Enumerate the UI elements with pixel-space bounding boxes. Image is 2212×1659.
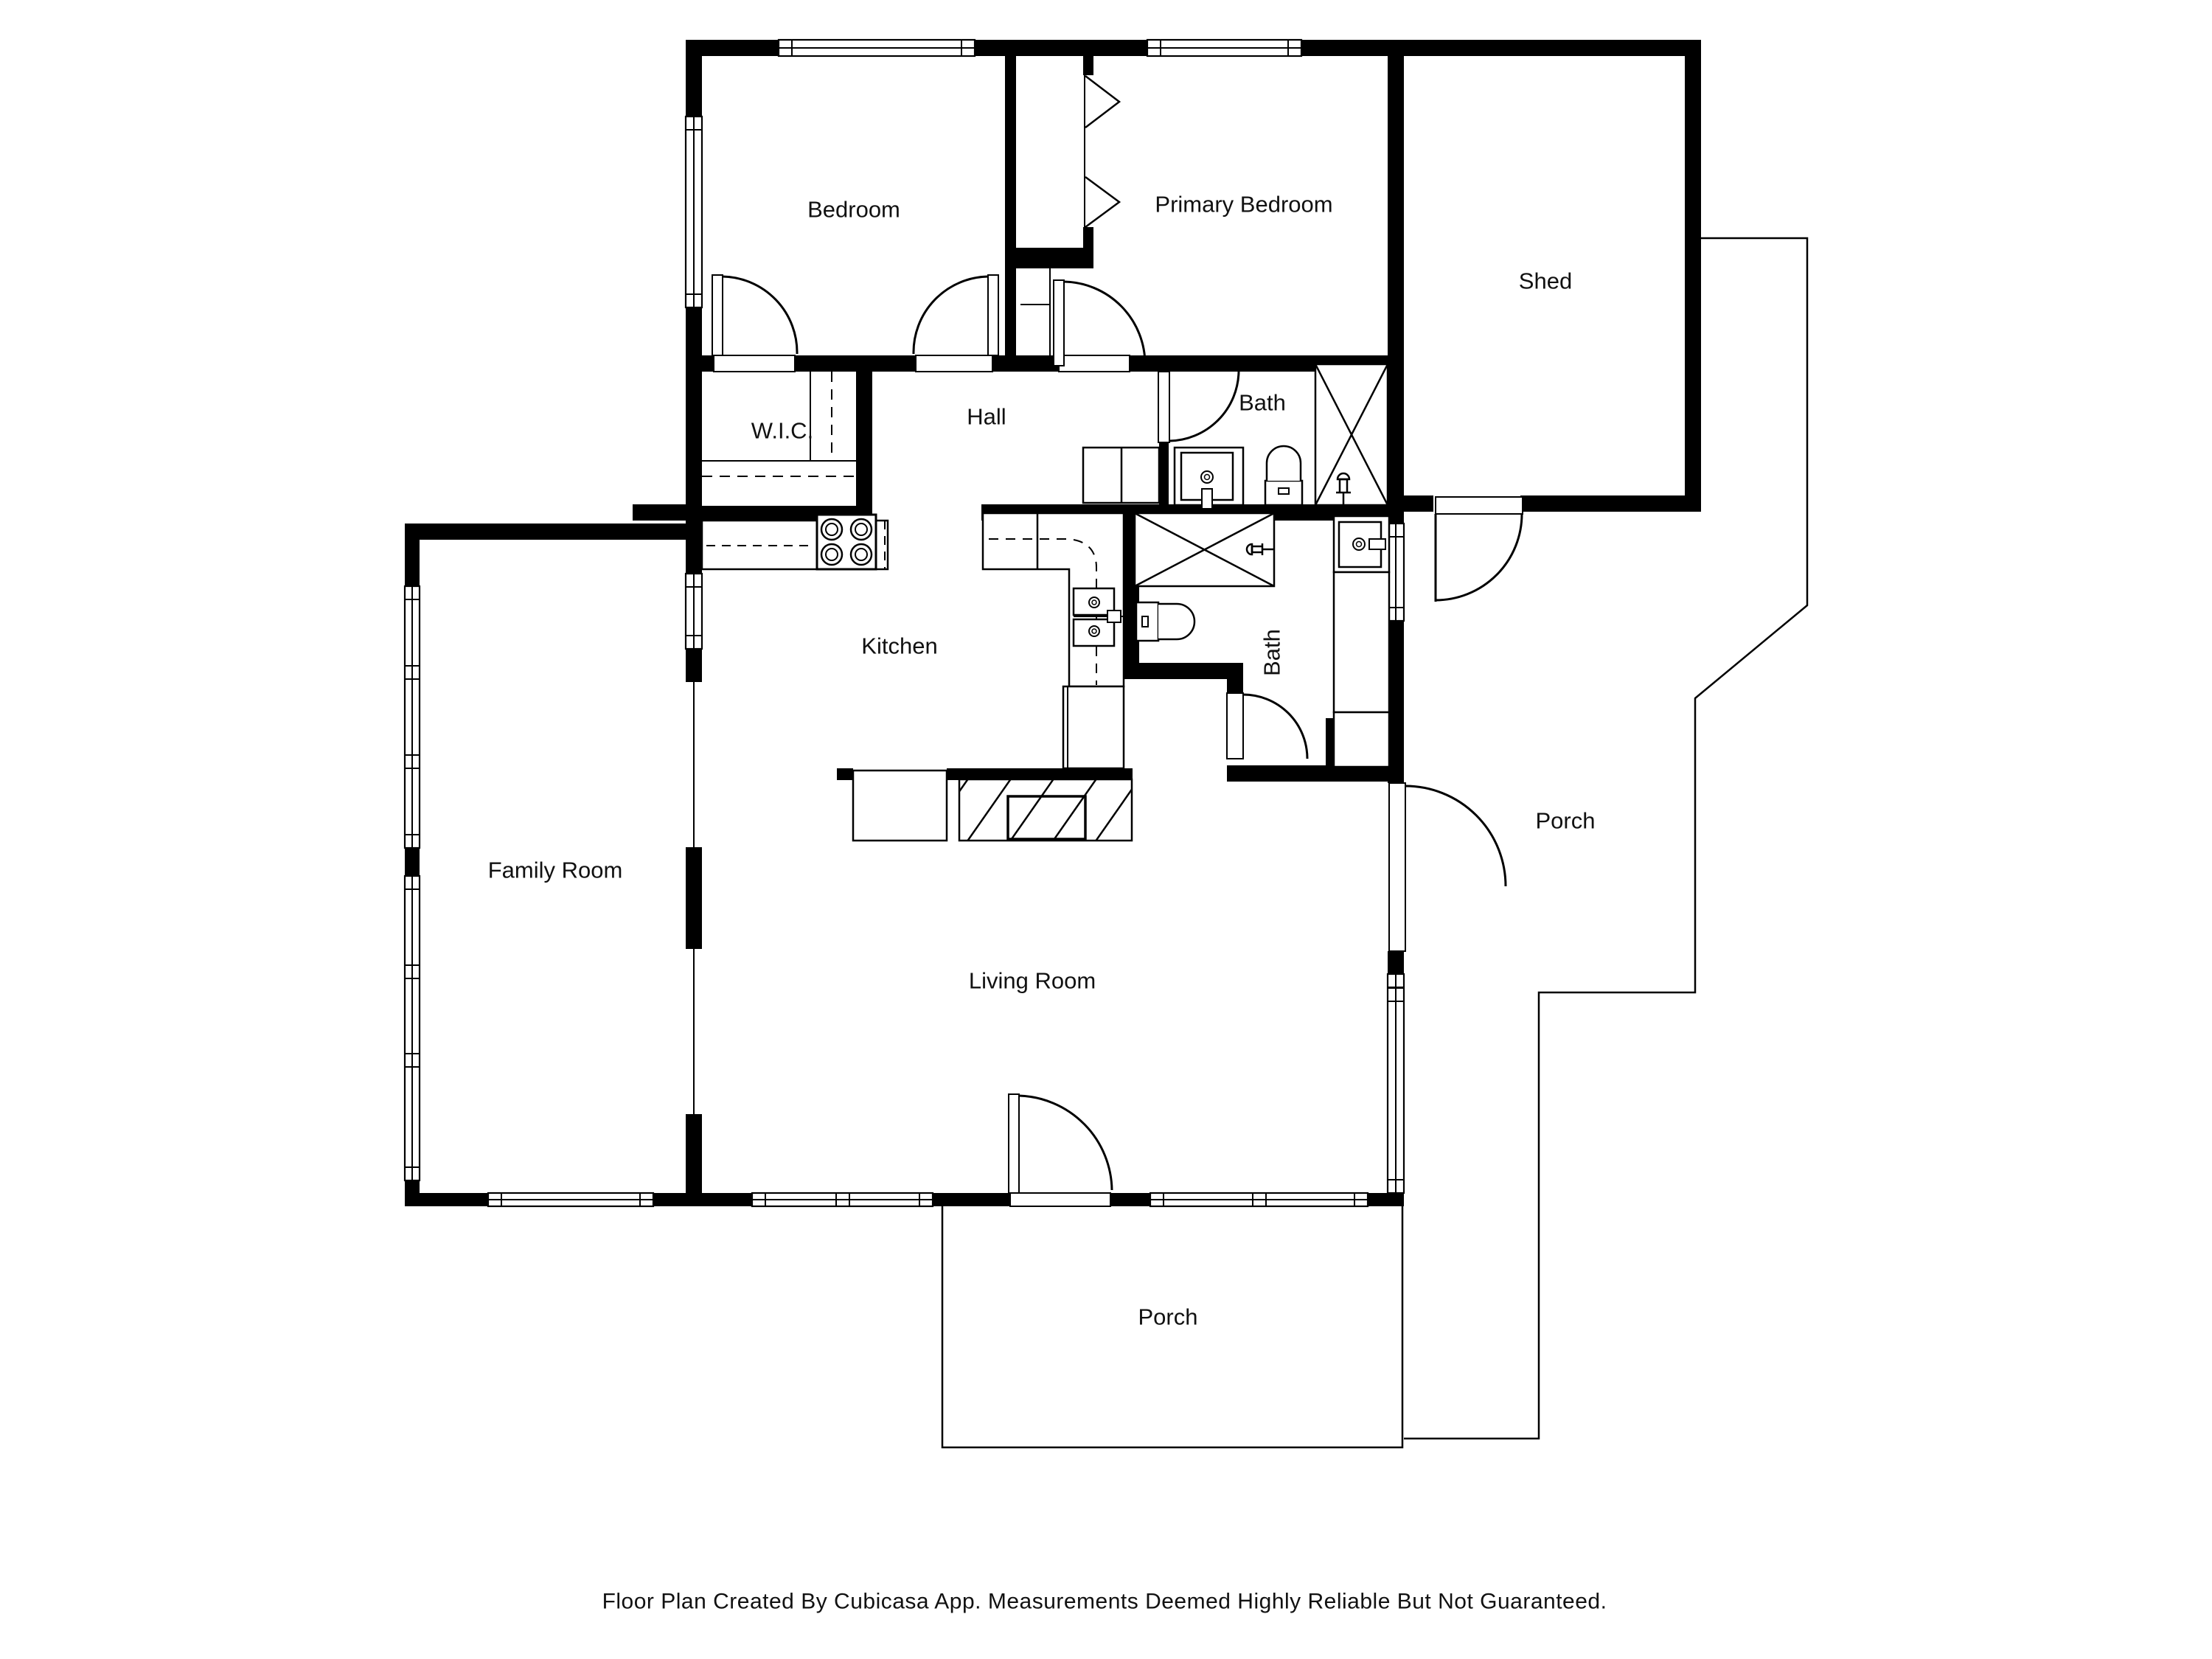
svg-text:Shed: Shed [1519, 268, 1572, 294]
svg-text:Bath: Bath [1259, 629, 1285, 676]
svg-text:Hall: Hall [967, 404, 1006, 430]
svg-text:Family Room: Family Room [488, 858, 623, 883]
svg-text:Bath: Bath [1239, 390, 1286, 416]
svg-text:Bedroom: Bedroom [807, 197, 900, 223]
svg-text:Porch: Porch [1536, 808, 1596, 834]
svg-text:Porch: Porch [1138, 1304, 1198, 1330]
svg-text:Floor Plan Created By Cubicasa: Floor Plan Created By Cubicasa App. Meas… [602, 1590, 1607, 1614]
svg-text:W.I.C.: W.I.C. [751, 418, 813, 444]
svg-text:Primary Bedroom: Primary Bedroom [1155, 192, 1332, 218]
svg-text:Kitchen: Kitchen [861, 633, 937, 659]
svg-text:Living Room: Living Room [969, 968, 1096, 994]
